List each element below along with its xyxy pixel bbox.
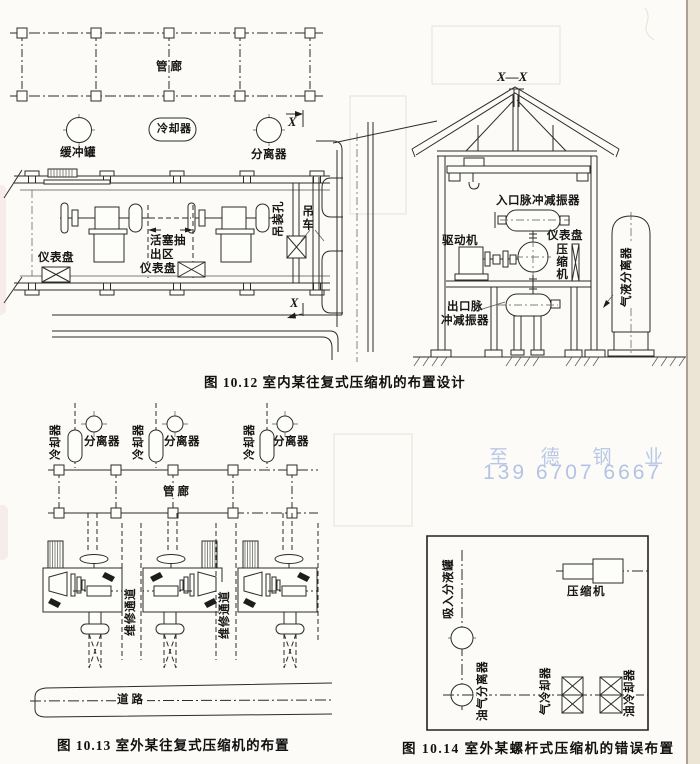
scan-smudge-left2: [0, 505, 8, 560]
compressor-section-label: 压缩机: [555, 243, 567, 281]
fig1014-caption: 图 10.14 室外某螺杆式压缩机的错误布置: [402, 737, 675, 757]
piston-zone-label-1: 活塞抽: [149, 235, 187, 247]
oil-gas-separator-label: 油气分离器: [477, 650, 489, 722]
cooler2-label: 冷却器: [133, 416, 145, 460]
section-mark-bottom: X: [290, 297, 298, 310]
separator2-label: 分离器: [164, 436, 200, 448]
cooler1-label: 冷却器: [50, 416, 62, 460]
separator-label: 分离器: [251, 149, 287, 161]
fig1013-road: [30, 683, 332, 717]
fig1013-caption: 图 10.13 室外某往复式压缩机的布置: [57, 734, 290, 754]
instrument-panel-section-label: 仪表盘: [547, 230, 583, 242]
scanned-page: 管廊 缓冲罐 冷却器 分离器 X 仪表盘 活塞抽 出区 仪表盘 吊装孔 吊车 X…: [0, 0, 700, 764]
fig1014-layout: [427, 536, 648, 730]
lifting-hole-label: 吊装孔: [273, 194, 285, 238]
suction-tank-label: 吸入分液罐: [443, 552, 455, 620]
outlet-damper-label-2: 冲减振器: [441, 315, 489, 327]
scan-smudge-left: [0, 185, 6, 315]
section-mark-top: X: [288, 116, 296, 129]
fig1012-caption: 图 10.12 室内某往复式压缩机的布置设计: [204, 371, 466, 391]
driver-label: 驱动机: [442, 235, 478, 247]
road-label: 道路: [116, 694, 147, 706]
pipe-rack-label: 管廊: [156, 61, 185, 73]
page-edge: [686, 0, 700, 764]
cooler-label: 冷却器: [157, 124, 192, 136]
compressor-1014-label: 压缩机: [567, 586, 606, 598]
crane-label: 吊车: [301, 205, 313, 232]
oil-cooler-label: 油冷却器: [624, 662, 636, 718]
separator3-label: 分离器: [273, 436, 309, 448]
gas-liquid-separator-label: 气液分离器: [621, 242, 633, 308]
instrument-panel-center-label: 仪表盘: [139, 263, 177, 275]
pipe-rack-1013-label: 管廊: [162, 486, 193, 498]
fig1013-units: [43, 513, 318, 668]
separator1-label: 分离器: [84, 436, 120, 448]
instrument-panel-left-label: 仪表盘: [38, 252, 74, 264]
maintenance-passage1-label: 维修通道: [125, 579, 137, 637]
buffer-tank-label: 缓冲罐: [60, 147, 96, 159]
inlet-damper-label: 入口脉冲减振器: [496, 195, 580, 207]
outlet-damper-label-1: 出口脉: [447, 301, 483, 313]
cooler3-label: 冷却器: [244, 416, 256, 460]
section-title: X—X: [497, 70, 527, 84]
gas-cooler-label: 气冷却器: [540, 660, 552, 716]
maintenance-passage2-label: 维修通道: [219, 582, 231, 640]
watermark-phone: 139 6707 6667: [483, 461, 662, 485]
piston-zone-label-2: 出区: [149, 249, 175, 261]
